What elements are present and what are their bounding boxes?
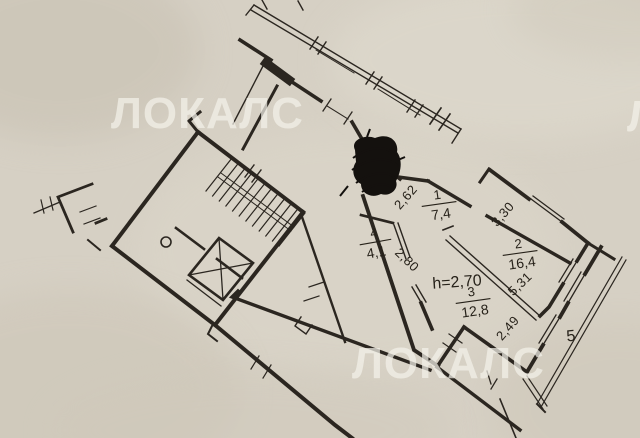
loggia-label: 5 bbox=[566, 328, 577, 346]
watermark-right-fragment: Л bbox=[627, 92, 640, 141]
floorplan-photo: 2,62 3,30 5,31 2,49 2,80 h=2,70 1 7,4 2 … bbox=[0, 0, 640, 438]
ceiling-height-label: h=2,70 bbox=[432, 272, 483, 292]
floorplan-svg: 2,62 3,30 5,31 2,49 2,80 h=2,70 1 7,4 2 … bbox=[0, 0, 640, 438]
room-1-area: 7,4 bbox=[430, 204, 452, 223]
watermark-bottom: ЛОКАЛС bbox=[352, 339, 545, 388]
watermark-top-left: ЛОКАЛС bbox=[111, 89, 304, 138]
room-4-area: 4,1 bbox=[365, 242, 387, 261]
